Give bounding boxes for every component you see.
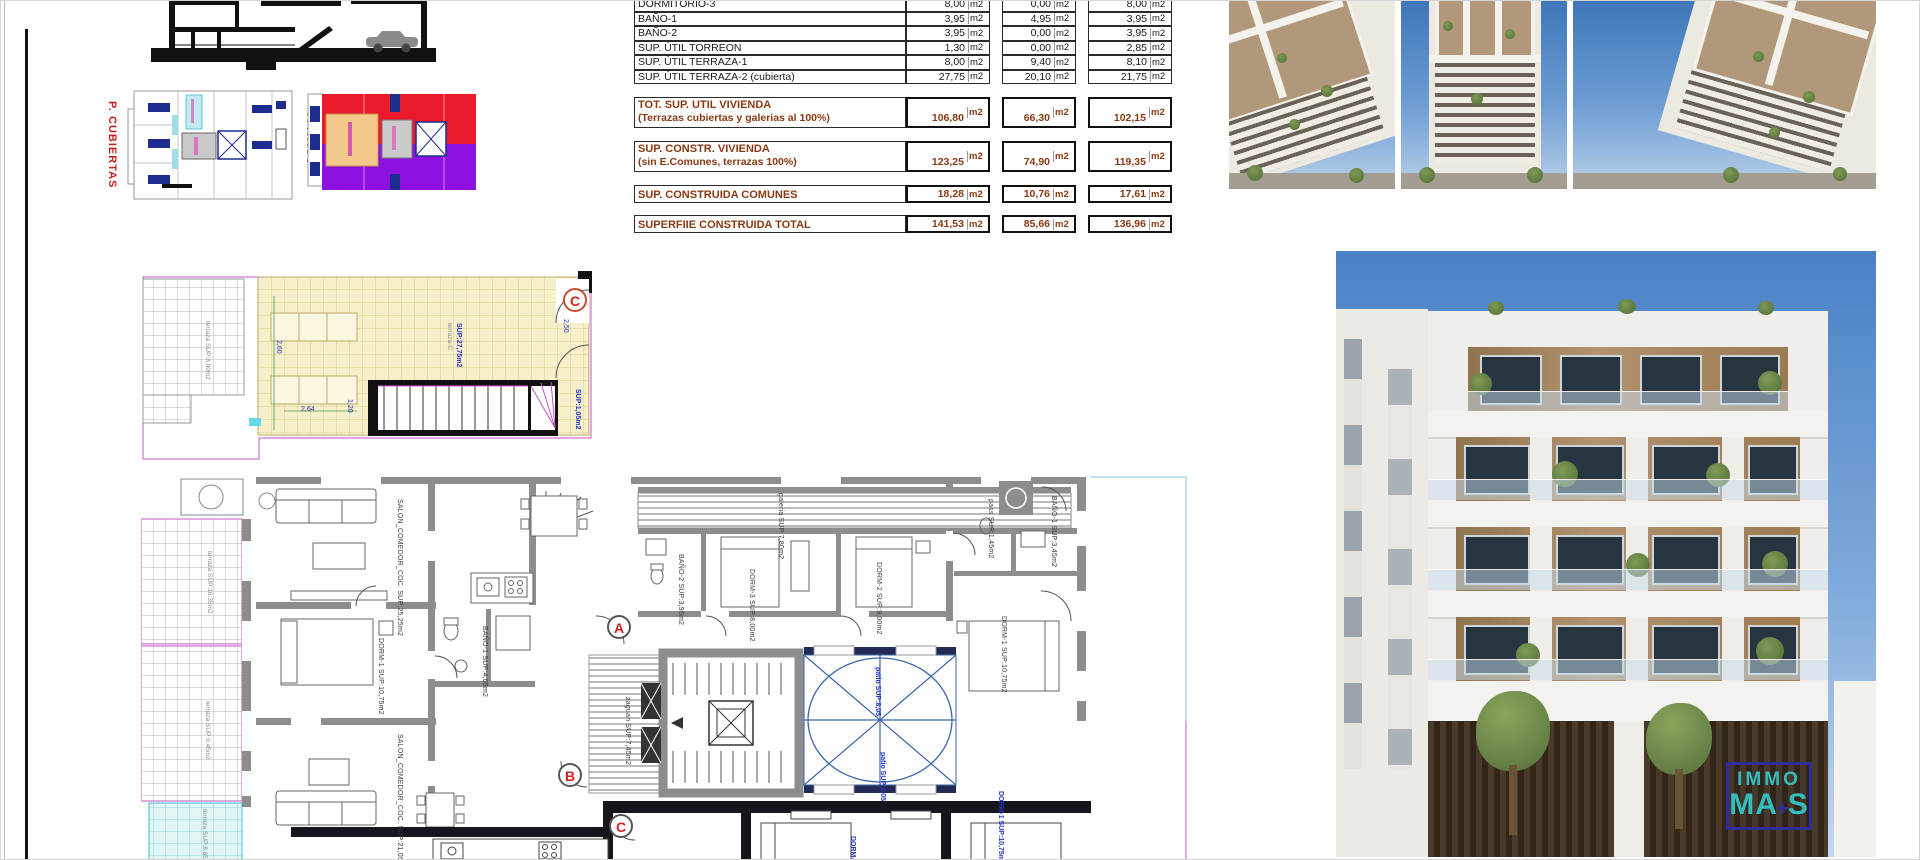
neighbor-building [1336, 309, 1428, 857]
apartment-marker-c-attic: C [563, 288, 587, 312]
aerial-render-left [1229, 1, 1395, 189]
table-summary-row: SUP. CONSTR. VIVIENDA(sin E.Comunes, ter… [634, 141, 1169, 172]
apartment-marker-a: A [607, 615, 631, 639]
row-label: BAÑO-2 [634, 26, 906, 41]
table-row: SUP. ÚTIL TERRAZA-1 8,00m2 9,40m2 8,10m2 [634, 55, 1169, 70]
table-row: DORMITORIO-3 8,00m2 0,00m2 8,00m2 [634, 0, 1169, 12]
table-row: SUP. ÚTIL TORREON 1,30m2 0,00m2 2,85m2 [634, 41, 1169, 56]
room-label: SALON_COMEDOR_COC. SUP:25,25m2 [396, 499, 403, 636]
attic-terrace-c-label: terraza-C [446, 323, 453, 350]
cubiertas-key-plan [126, 89, 296, 201]
cubiertas-plan-label: P. CUBIERTAS [106, 101, 118, 188]
logo-line1: IMMO [1729, 770, 1809, 790]
table-summary-row: SUP. CONSTRUIDA COMUNES 18,28m2 10,76m2 … [634, 185, 1169, 203]
aerial-render-right [1573, 1, 1876, 189]
row-label: SUP. ÚTIL TERRAZA-2 (cubierta) [634, 70, 906, 85]
room-label: galeria SUP:7,80m2 [777, 493, 784, 559]
patio-label: patio SUP:8,05 [879, 752, 886, 801]
terrace-label: terraza SUP:10,35m2 [206, 551, 213, 614]
stair-core [641, 653, 799, 793]
immo-mas-logo: IMMO MA+S [1726, 762, 1812, 830]
logo-line2: MA+S [1729, 790, 1809, 822]
dim-label: 1,20 [346, 399, 353, 413]
sheet-edge-line [4, 1, 5, 860]
attic-stair-area-label: SUP:1,05m2 [574, 389, 581, 429]
attic-left-terrace-label: terraza SUP:8,00m2 [204, 321, 211, 380]
table-summary-row: SUPERFIIE CONSTRUIDA TOTAL 141,53m2 85,6… [634, 215, 1169, 233]
logo-plus-icon: + [1776, 794, 1790, 824]
attic-terrace-c-area: SUP:27,75m2 [455, 323, 462, 367]
room-label: DORM-1 SUP:10,75m2 [377, 638, 384, 715]
row-label: SUP. ÚTIL TERRAZA-1 [634, 55, 906, 70]
room-label: pass SUP:1,45m2 [987, 499, 994, 558]
patio-label: patio SUP:8,05 [874, 667, 881, 716]
stair-xbox-icon [218, 131, 246, 159]
terrace-label: terraza SUP:9,45m2 [204, 701, 211, 760]
table-row: SUP. ÚTIL TERRAZA-2 (cubierta) 27,75m2 2… [634, 70, 1169, 85]
attic-stair [368, 380, 558, 436]
terrace-label: terraza SUP:8,65m2 [201, 809, 208, 860]
room-label: DORM-2 SUP:9,00m2 [849, 836, 856, 860]
aerial-render-center [1401, 1, 1567, 189]
row-label: SUP. ÚTIL TORREON [634, 41, 906, 56]
atico-key-plan [304, 86, 494, 201]
room-label: SALON_COMEDOR_COC. SUP:21,05m2 [396, 734, 403, 860]
dim-label: 2,60 [275, 340, 282, 354]
room-label: BAÑO-1 SUP:3,45m2 [1050, 496, 1057, 567]
row-label: BAÑO-1 [634, 12, 906, 27]
plan-sheet: P. CUBIERTAS P. ATICO [0, 0, 1920, 860]
room-label: BAÑO-1 SUP:4,05m2 [481, 626, 488, 697]
main-floor-plan [141, 471, 1201, 860]
room-label: DORM-2 SUP:9,00m2 [875, 562, 882, 635]
table-summary-row: TOT. SUP. UTIL VIVIENDA(Terrazas cubiert… [634, 97, 1169, 128]
apartment-marker-c: C [609, 814, 633, 838]
room-label: zaguan SUP:7,45m2 [624, 697, 631, 765]
table-row: BAÑO-2 3,95m2 0,00m2 3,95m2 [634, 26, 1169, 41]
dim-label: 2,50 [562, 319, 569, 333]
building-section-drawing [151, 1, 441, 71]
street-tree [1646, 703, 1712, 829]
room-label: DORM-1 SUP:10,75m2 [1000, 616, 1007, 693]
table-row: BAÑO-1 3,95m2 4,95m2 3,95m2 [634, 12, 1169, 27]
room-label: BAÑO-2 SUP:3,95m2 [677, 554, 684, 625]
area-table: DORMITORIO-3 8,00m2 0,00m2 8,00m2 BAÑO-1… [634, 0, 1169, 233]
row-label: DORMITORIO-3 [634, 0, 906, 12]
apartment-marker-b: B [558, 763, 582, 787]
elevator-icon [709, 701, 753, 745]
facade-render: IMMO MA+S [1336, 251, 1876, 857]
stair-xbox-icon [416, 122, 446, 156]
sheet-frame-rule [25, 29, 28, 860]
room-label: DORM-3 SUP:8,00m2 [748, 569, 755, 642]
dim-label: 2,64 [301, 406, 315, 413]
street-tree [1476, 691, 1550, 835]
room-label: DORM-1 SUP:10,75m2 [997, 791, 1004, 860]
